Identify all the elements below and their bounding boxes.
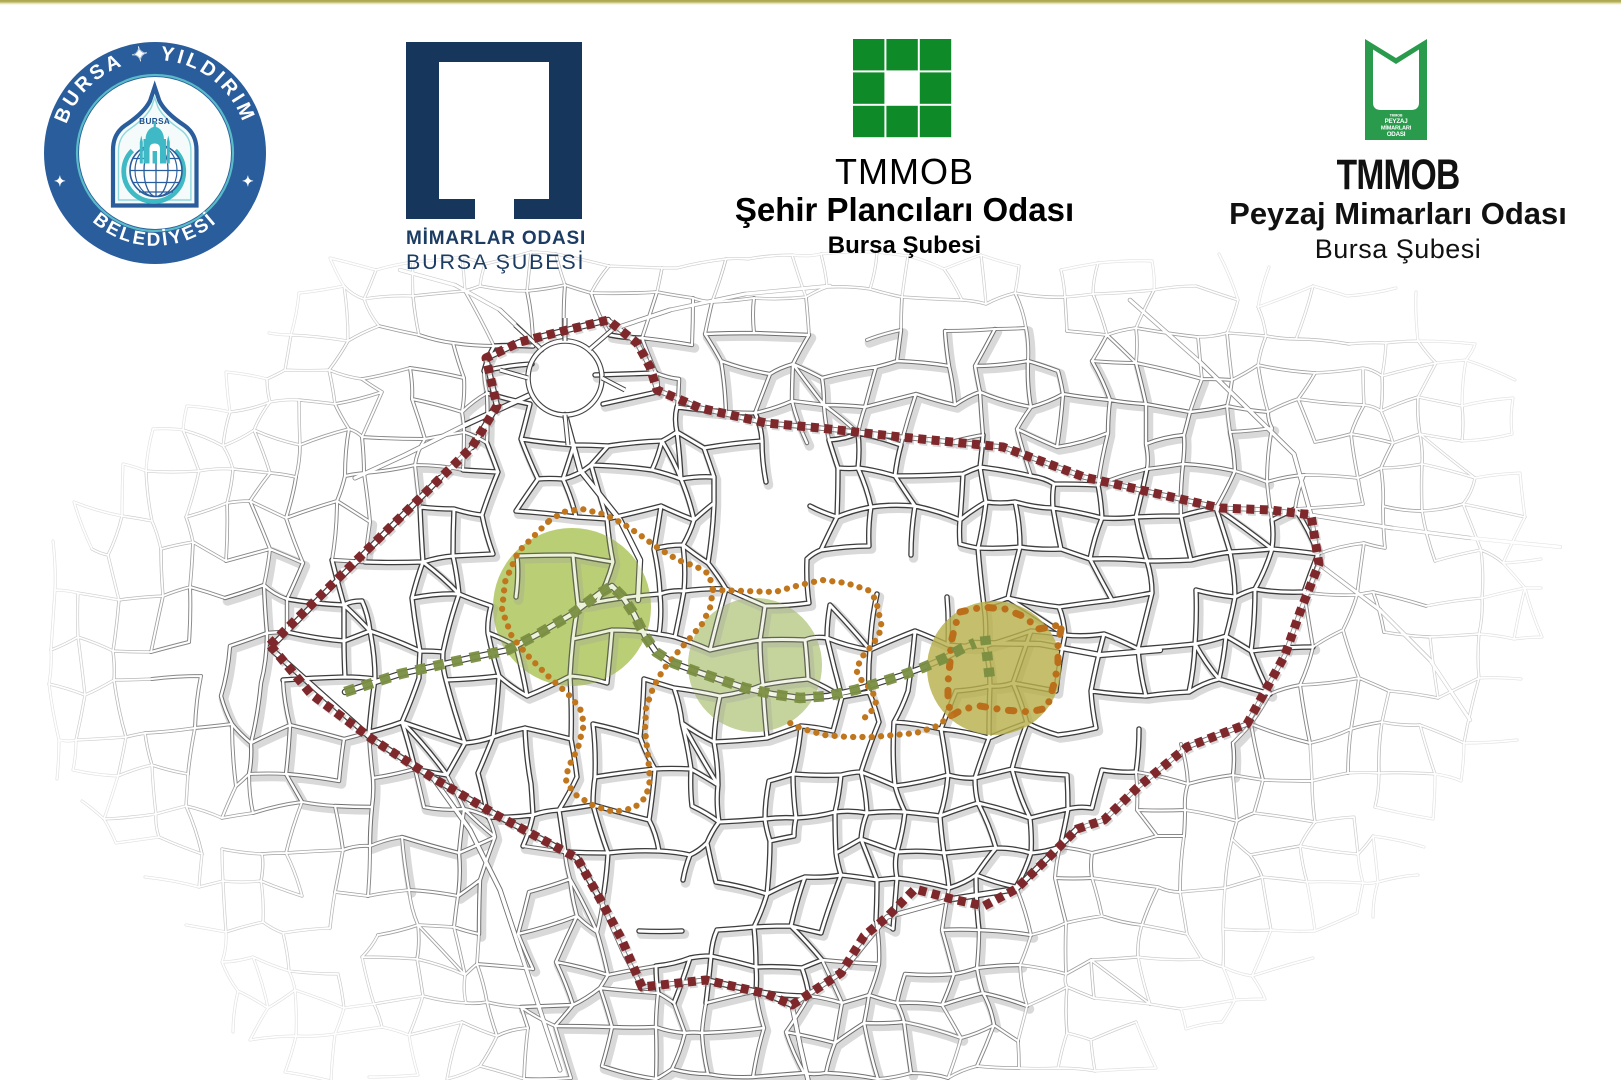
- svg-text:✦: ✦: [242, 173, 254, 189]
- svg-text:PEYZAJ: PEYZAJ: [1385, 118, 1409, 125]
- svg-text:✦: ✦: [54, 173, 66, 189]
- svg-text:TMMOB: TMMOB: [1390, 114, 1403, 118]
- svg-text:ODASI: ODASI: [1387, 131, 1406, 138]
